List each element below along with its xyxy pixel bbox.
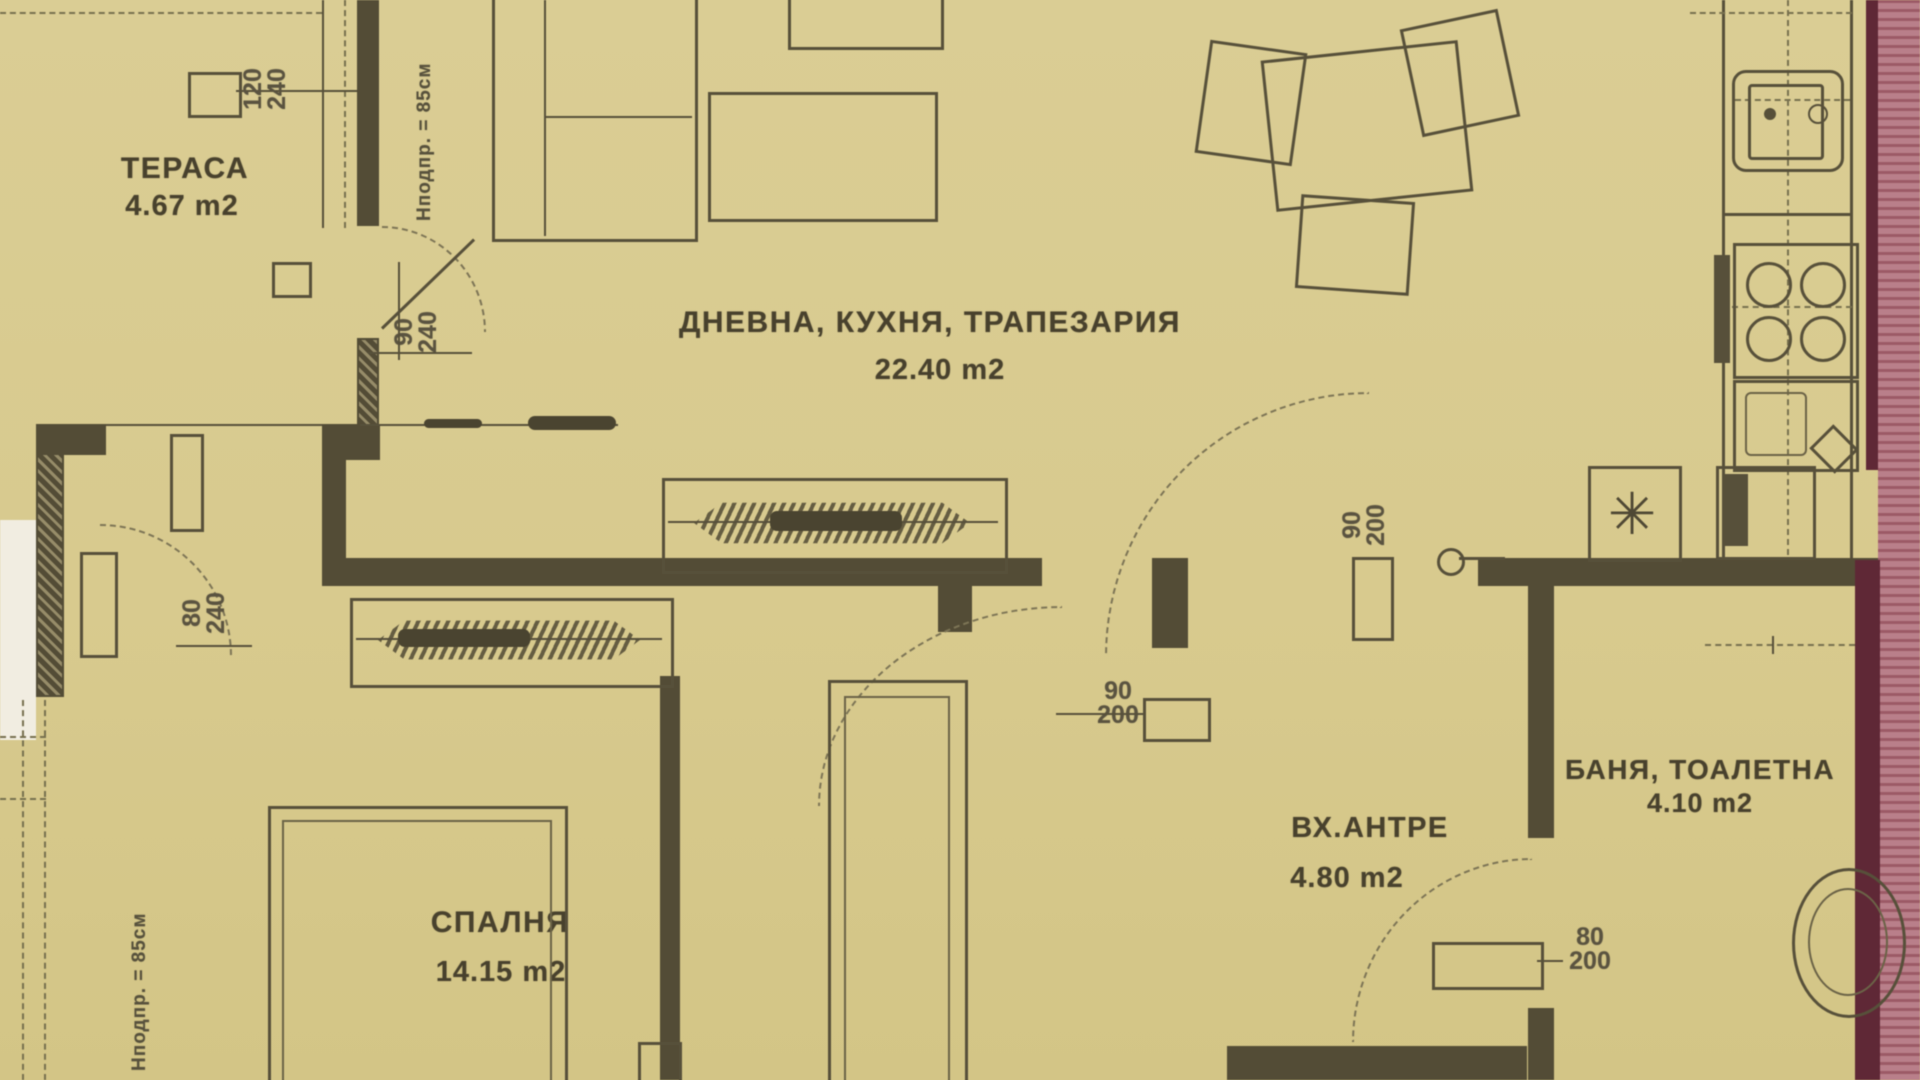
window-dark-bar: [398, 629, 530, 647]
terrace-dash-line: [344, 0, 346, 228]
door-height: 200: [1365, 489, 1389, 561]
chair: [1400, 9, 1521, 137]
room-area-bath: 4.10 m2: [1545, 788, 1855, 819]
room-label-bath: БАНЯ, ТОАЛЕТНА: [1540, 754, 1860, 786]
room-area-hall: 4.80 m2: [1262, 862, 1432, 895]
wardrobe-inner: [844, 696, 950, 1080]
coffee-table: [708, 92, 938, 222]
sofa-back-line: [544, 0, 546, 236]
door-leaf-entry: [1352, 557, 1394, 641]
stove-burner: [1746, 316, 1792, 362]
sofa: [492, 0, 698, 242]
door-height: 240: [205, 581, 229, 645]
door-height: 200: [1082, 704, 1154, 728]
sink-drain: [1808, 104, 1828, 124]
stove-burner: [1800, 262, 1846, 308]
wall: [357, 0, 379, 226]
door-arc-entry: [1105, 392, 1369, 656]
window-height: 240: [266, 59, 290, 119]
leader-line: [176, 645, 252, 647]
door-leaf-bathroom: [1432, 942, 1544, 990]
floor-plan-drawing: 120 240 Нподпр. = 85см ТЕРАСА 4.67 m2 90…: [0, 0, 1920, 1080]
cross-tick: [1772, 636, 1774, 654]
leader-line: [368, 352, 472, 354]
nightstand: [638, 1042, 682, 1080]
terrace-window-symbol: [188, 72, 242, 118]
railing-dash: [0, 736, 46, 738]
chair: [1295, 194, 1415, 296]
window-dark-bar: [424, 419, 482, 428]
leader-line: [1537, 960, 1563, 962]
stove-burner: [1800, 316, 1846, 362]
room-label-hall: ВХ.АНТРЕ: [1280, 812, 1460, 845]
wall-switch-box: [272, 262, 312, 298]
terrace-railing-dash: [0, 12, 322, 14]
room-label-living: ДНЕВНА, КУХНЯ, ТРАПЕЗАРИЯ: [660, 306, 1200, 340]
faucet-symbol: [1437, 548, 1465, 576]
washbasin-inner: [1808, 888, 1888, 996]
room-area-living: 22.40 m2: [790, 354, 1090, 387]
railing-dash: [44, 700, 46, 1080]
wall: [36, 424, 106, 455]
exterior-wall-edge: [1866, 0, 1878, 470]
sofa-cushion-line: [546, 116, 692, 118]
sill-note-top: Нподпр. = 85см: [414, 11, 436, 221]
window-size-label: 120 240: [242, 59, 304, 119]
leader-line: [1056, 713, 1144, 715]
chair: [1195, 40, 1308, 167]
door-size-label: 80 240: [181, 581, 239, 645]
wall-hatched: [36, 453, 64, 697]
railing-dash: [22, 700, 24, 1080]
faucet-stem: [1459, 557, 1505, 560]
wall-bedroom-hall: [660, 676, 680, 1080]
side-table: [788, 0, 944, 50]
counter-dash: [1690, 12, 1852, 14]
fridge-snowflake-icon: ✳: [1588, 470, 1676, 560]
terrace-rail-line: [322, 0, 324, 228]
counter-line: [1725, 213, 1853, 216]
appliance-inner: [1745, 392, 1807, 456]
window-dark-bar: [528, 416, 616, 430]
wall-bathroom-top: [1478, 558, 1920, 586]
room-label-terrace: ТЕРАСА: [90, 152, 280, 186]
door-size-label: 90 200: [1082, 680, 1154, 744]
wall-hall-bottom: [1227, 1046, 1527, 1080]
stove: [1733, 243, 1859, 379]
door-size-label: 80 200: [1542, 926, 1638, 990]
bed-inner: [282, 820, 552, 1080]
leader-line: [398, 262, 400, 360]
railing-dash: [0, 798, 46, 800]
door-leaf-terrace-bedroom: [80, 552, 118, 658]
room-area-terrace: 4.67 m2: [88, 190, 276, 223]
floor-plan: 120 240 Нподпр. = 85см ТЕРАСА 4.67 m2 90…: [0, 0, 1920, 1080]
sill-note-left: Нподпр. = 85см: [129, 861, 151, 1071]
cabinet-dark-panel: [1722, 474, 1748, 546]
terrace-radiator: [170, 434, 204, 532]
window-dark-bar: [770, 511, 902, 531]
sink-faucet-dot: [1764, 108, 1776, 120]
white-margin: [0, 520, 36, 740]
stove-side-bar: [1714, 255, 1730, 363]
bathroom-dash-line: [1705, 644, 1855, 646]
door-size-label: 90 200: [1341, 489, 1399, 561]
stove-burner: [1746, 262, 1792, 308]
